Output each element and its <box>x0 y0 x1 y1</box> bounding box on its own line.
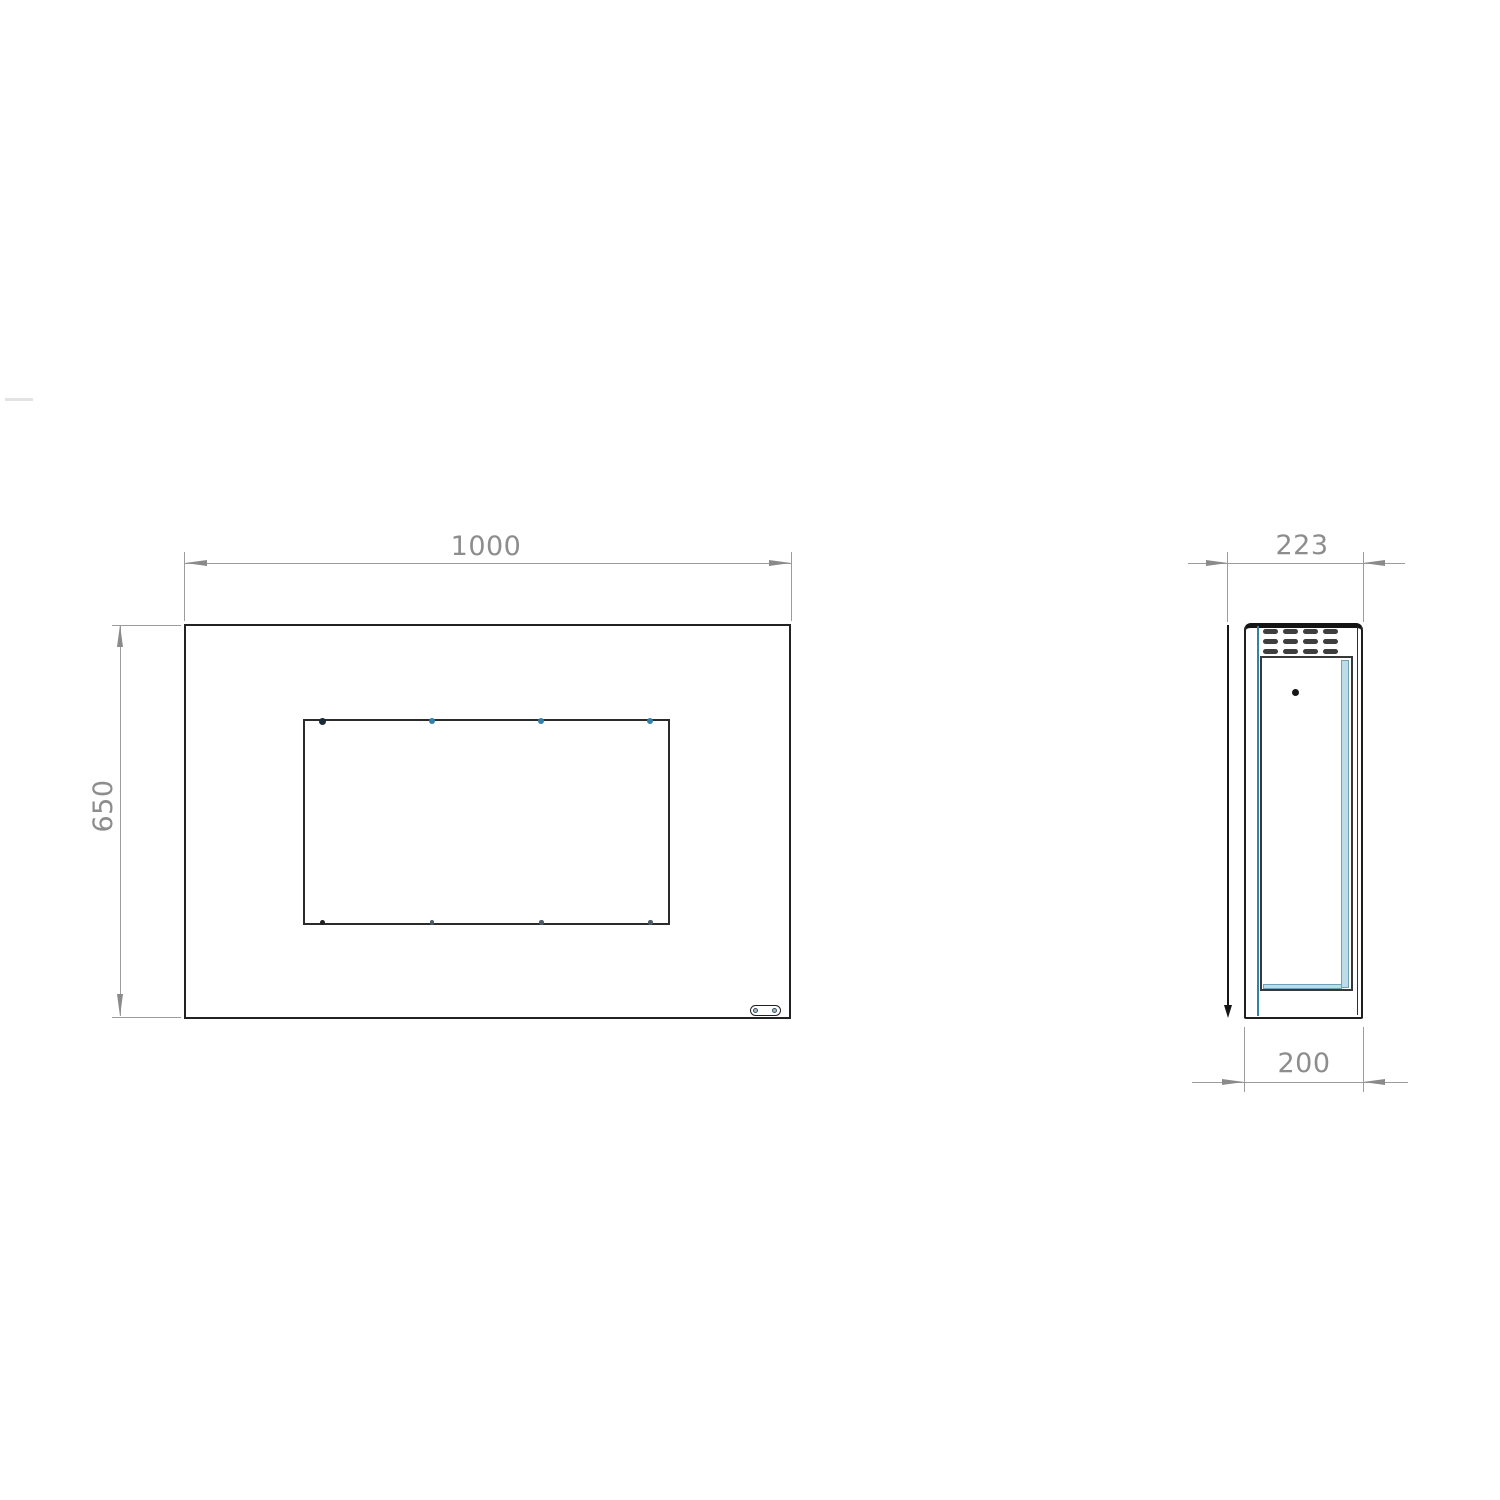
plate-screw-icon <box>772 1008 777 1013</box>
dimension-arrow <box>1222 1079 1244 1085</box>
vent-slot-icon <box>1323 639 1338 644</box>
vent-slot-icon <box>1263 649 1278 654</box>
vent-slot-icon <box>1303 639 1318 644</box>
mounting-hole-dot <box>430 920 435 925</box>
side-glass-line <box>1257 626 1259 1016</box>
vent-slot-icon <box>1283 649 1298 654</box>
dimension-label-depth: 223 <box>1242 532 1362 560</box>
mounting-hole-dot <box>320 920 325 925</box>
door-glass-strip <box>1263 984 1342 989</box>
glass-front-arrow-icon <box>1224 1005 1232 1018</box>
dimension-label-height: 650 <box>90 746 118 866</box>
glass-front-edge-line <box>1227 625 1230 1006</box>
mounting-hole-dot <box>647 718 653 724</box>
vent-slot-icon <box>1283 629 1298 634</box>
stray-mark <box>5 398 33 401</box>
dimension-line <box>120 626 121 1016</box>
dimension-arrow <box>185 560 207 566</box>
vent-slot-icon <box>1283 639 1298 644</box>
vent-slot-icon <box>1303 629 1318 634</box>
dimension-arrow <box>117 994 123 1016</box>
front-cutout-outline <box>303 719 670 925</box>
mounting-hole-dot <box>319 718 326 725</box>
brand-plate <box>750 1005 781 1016</box>
dimension-arrow <box>769 560 791 566</box>
vent-slot-icon <box>1323 629 1338 634</box>
vent-grid <box>1263 629 1338 654</box>
plate-screw-icon <box>753 1008 758 1013</box>
dimension-label-width: 1000 <box>426 533 546 561</box>
vent-slot-icon <box>1303 649 1318 654</box>
dimension-line <box>185 563 791 564</box>
extension-line <box>112 1017 181 1018</box>
mounting-hole-dot <box>429 718 435 724</box>
mounting-hole-dot <box>648 920 653 925</box>
mounting-hole-dot <box>538 718 544 724</box>
door-pin-dot <box>1292 689 1299 696</box>
side-door-frame <box>1260 656 1353 991</box>
side-inner-edge-line <box>1357 627 1359 1015</box>
dimension-arrow <box>1363 1079 1385 1085</box>
vent-slot-icon <box>1323 649 1338 654</box>
door-glass-strip <box>1341 660 1349 988</box>
vent-slot-icon <box>1263 629 1278 634</box>
dimension-arrow <box>1206 560 1228 566</box>
vent-slot-icon <box>1263 639 1278 644</box>
mounting-hole-dot <box>539 920 544 925</box>
drawing-canvas: 1000 650 <box>0 0 1500 1500</box>
dimension-label-body-depth: 200 <box>1244 1050 1364 1078</box>
dimension-arrow <box>1363 560 1385 566</box>
dimension-arrow <box>117 625 123 647</box>
